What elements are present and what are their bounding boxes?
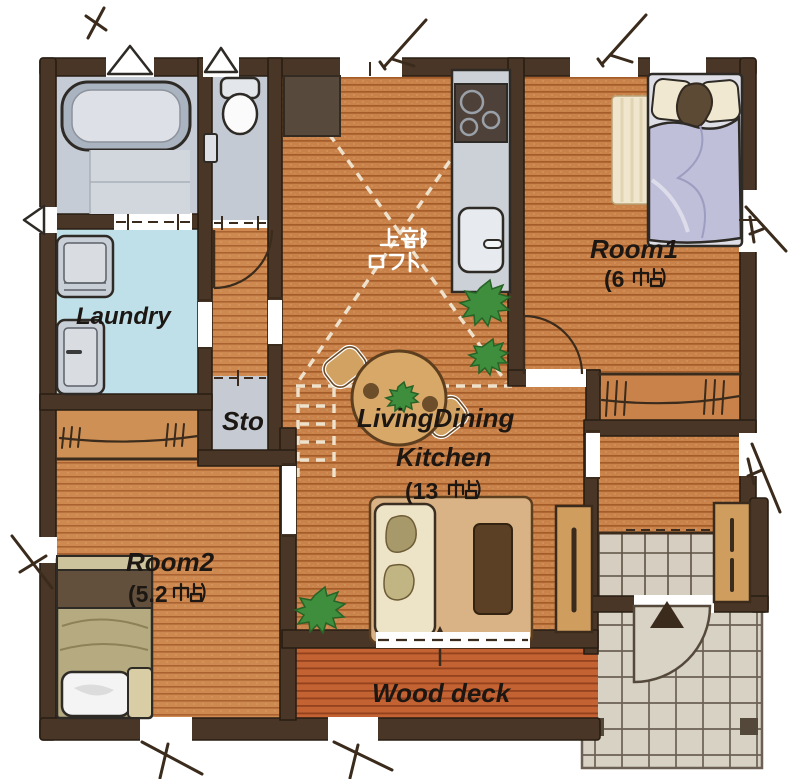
svg-text:Kitchen: Kitchen (396, 442, 491, 472)
svg-text:Room1: Room1 (590, 234, 678, 264)
svg-text:(13: (13 (405, 478, 438, 504)
svg-text:Room2: Room2 (126, 547, 215, 577)
svg-text:Sto: Sto (222, 406, 264, 436)
svg-text:LivingDining: LivingDining (357, 403, 515, 433)
svg-text:(6: (6 (604, 266, 624, 292)
svg-text:(5.2: (5.2 (128, 581, 168, 607)
svg-text:Wood deck: Wood deck (372, 678, 512, 708)
svg-text:Laundry: Laundry (76, 303, 172, 330)
